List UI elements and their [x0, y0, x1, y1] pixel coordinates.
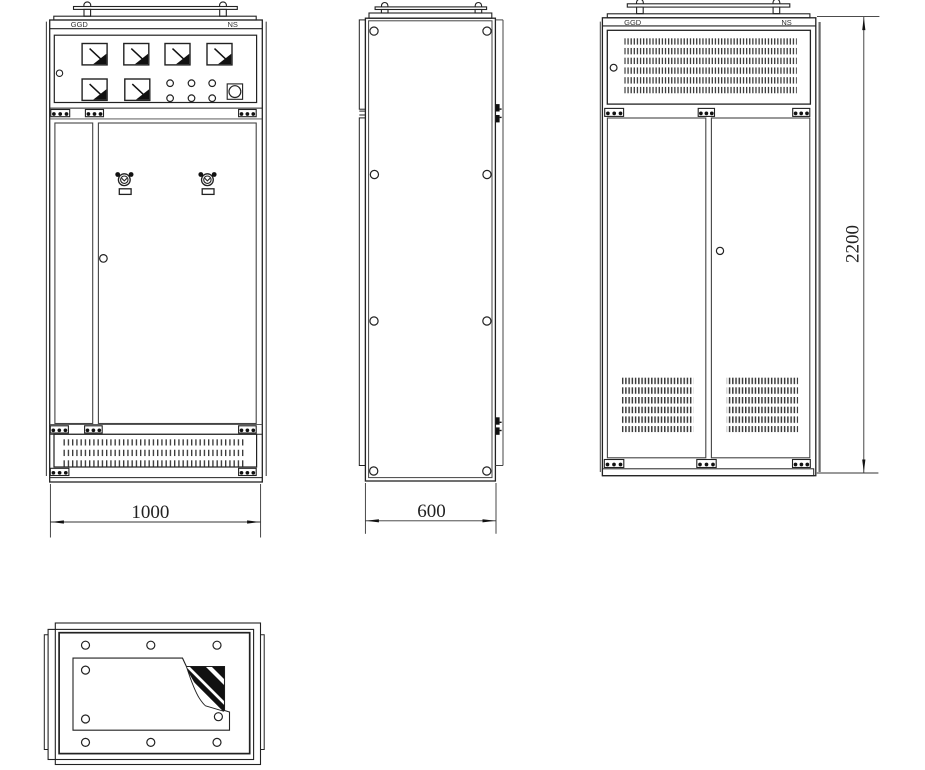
svg-text:NS: NS: [227, 20, 237, 29]
svg-text:GGD: GGD: [71, 20, 89, 29]
svg-text:NS: NS: [781, 18, 791, 27]
svg-text:GGD: GGD: [624, 18, 642, 27]
svg-text:2200: 2200: [843, 225, 864, 263]
svg-text:600: 600: [417, 501, 446, 522]
svg-text:1000: 1000: [131, 502, 169, 523]
